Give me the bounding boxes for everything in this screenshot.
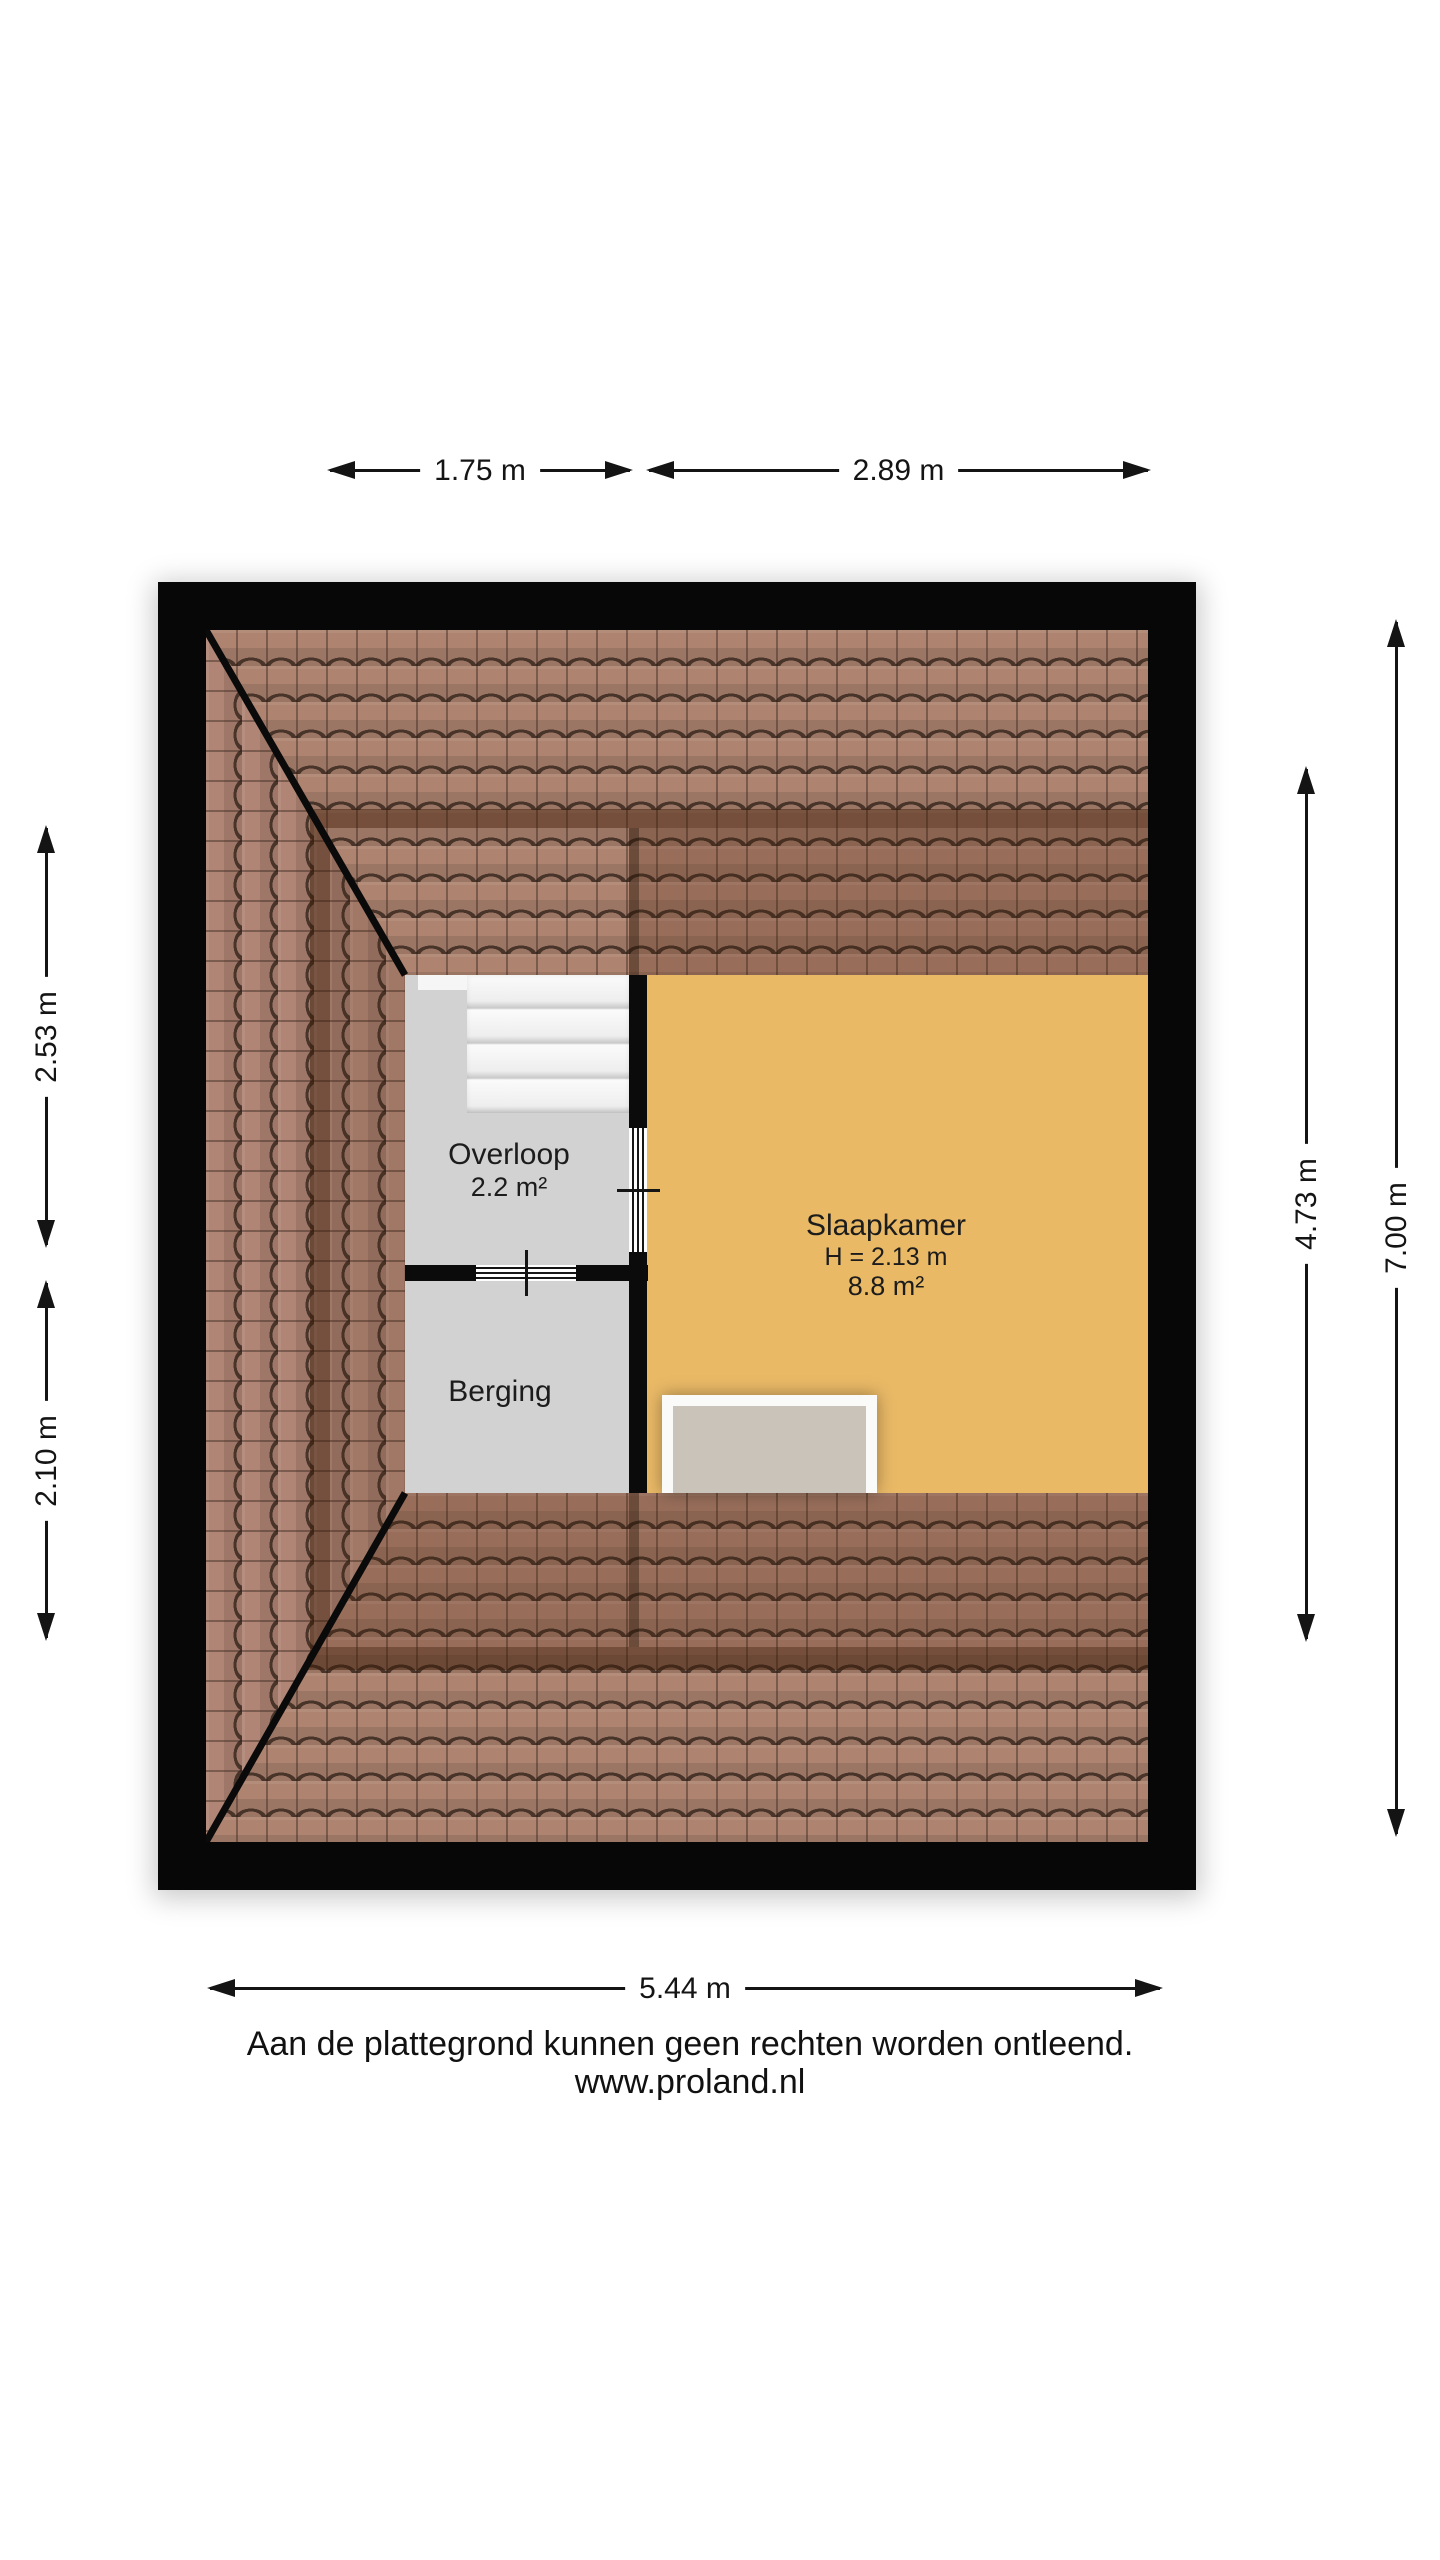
dimension-label: 7.00 m [1380, 1168, 1414, 1288]
room-ceiling-height: H = 2.13 m [806, 1243, 966, 1271]
label-overloop: Overloop 2.2 m² [448, 1138, 570, 1202]
dimension-label: 1.75 m [420, 454, 540, 488]
dimension-left-lower: 2.10 m [45, 1283, 48, 1638]
staircase [467, 975, 629, 1113]
dimension-top-right: 2.89 m [649, 469, 1148, 472]
wall-overloop-slaapkamer [629, 975, 647, 1493]
dimension-label: 2.53 m [30, 977, 64, 1097]
stair-landing [418, 975, 468, 990]
arrowhead-right-icon [605, 461, 633, 479]
floorplan-outer-wall: Overloop 2.2 m² Berging Slaapkamer H = 2… [158, 582, 1196, 1890]
arrowhead-up-icon [1387, 619, 1405, 647]
room-area: 8.8 m² [806, 1271, 966, 1301]
arrowhead-up-icon [37, 825, 55, 853]
arrowhead-left-icon [327, 461, 355, 479]
dimension-label: 2.89 m [839, 454, 959, 488]
arrowhead-down-icon [1387, 1809, 1405, 1837]
dimension-label: 2.10 m [30, 1401, 64, 1521]
dimension-label: 4.73 m [1290, 1144, 1324, 1264]
roof-hip-line-bottom [206, 1493, 405, 1842]
dormer-window-glass [673, 1406, 866, 1493]
arrowhead-up-icon [1297, 766, 1315, 794]
room-name: Overloop [448, 1138, 570, 1172]
arrowhead-left-icon [646, 461, 674, 479]
arrowhead-right-icon [1135, 1979, 1163, 1997]
footer-website: www.proland.nl [575, 2063, 806, 2102]
arrowhead-down-icon [37, 1220, 55, 1248]
dimension-right-outer: 7.00 m [1395, 622, 1398, 1834]
label-slaapkamer: Slaapkamer H = 2.13 m 8.8 m² [806, 1209, 966, 1301]
dimension-left-upper: 2.53 m [45, 828, 48, 1245]
dimension-top-left: 1.75 m [330, 469, 630, 472]
dimension-right-inner: 4.73 m [1305, 769, 1308, 1639]
door-center-tick [525, 1250, 528, 1296]
arrowhead-up-icon [37, 1280, 55, 1308]
roof-hip-line-top [206, 630, 405, 975]
dormer-window [662, 1395, 877, 1493]
footer-disclaimer: Aan de plattegrond kunnen geen rechten w… [247, 2025, 1134, 2064]
arrowhead-right-icon [1123, 461, 1151, 479]
arrowhead-down-icon [1297, 1614, 1315, 1642]
room-name: Slaapkamer [806, 1209, 966, 1243]
floorplan-interior: Overloop 2.2 m² Berging Slaapkamer H = 2… [206, 630, 1148, 1842]
label-berging: Berging [448, 1375, 551, 1409]
wall-overloop-berging [405, 1265, 648, 1281]
dimension-label: 5.44 m [625, 1972, 745, 2006]
dimension-bottom: 5.44 m [210, 1987, 1160, 1990]
door-center-tick [617, 1189, 660, 1192]
arrowhead-left-icon [207, 1979, 235, 1997]
room-area: 2.2 m² [448, 1172, 570, 1202]
floorplan-page: { "rooms": { "overloop": { "name": "Over… [0, 0, 1440, 2560]
arrowhead-down-icon [37, 1613, 55, 1641]
room-name: Berging [448, 1375, 551, 1409]
